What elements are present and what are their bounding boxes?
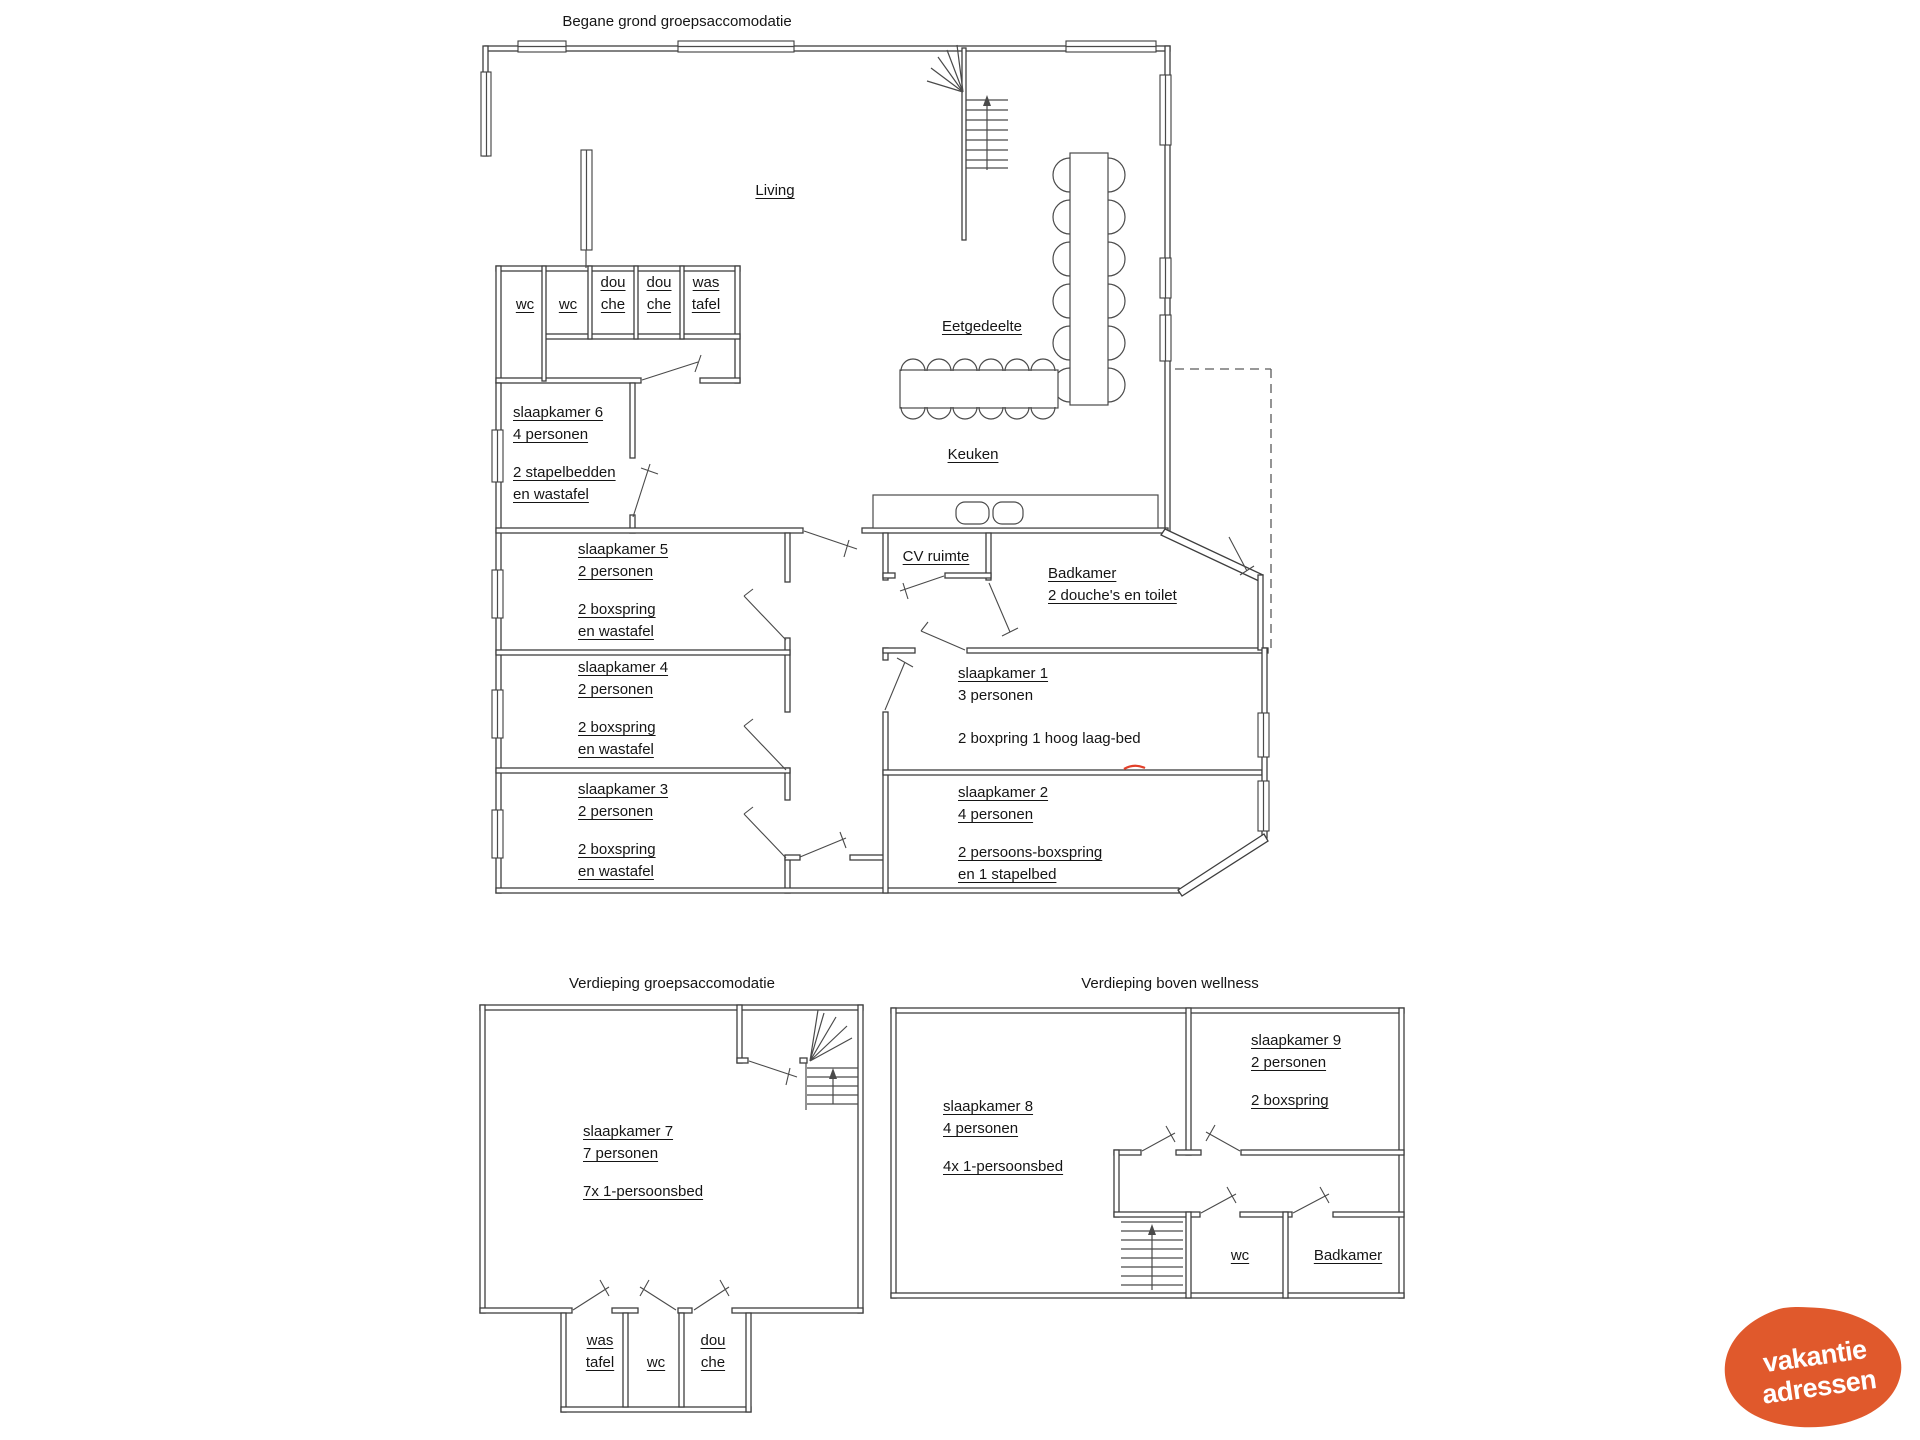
sk5-beds2: en wastafel bbox=[578, 621, 668, 643]
wastafel-line2: tafel bbox=[692, 294, 720, 316]
area-label-eetgedeelte: Eetgedeelte bbox=[942, 316, 1022, 338]
sk4-beds2: en wastafel bbox=[578, 739, 668, 761]
room-label-douche-2: dou che bbox=[646, 272, 671, 316]
sk5-capacity: 2 personen bbox=[578, 561, 668, 583]
room-label-douche-f1: dou che bbox=[700, 1330, 725, 1374]
room-label-wc-f1: wc bbox=[647, 1352, 665, 1374]
sk1-name: slaapkamer 1 bbox=[958, 663, 1141, 685]
room-label-badkamer: Badkamer 2 douche's en toilet bbox=[1048, 563, 1177, 607]
room-label-slaapkamer-5: slaapkamer 5 2 personen 2 boxspring en w… bbox=[578, 539, 668, 643]
room-label-slaapkamer-7: slaapkamer 7 7 personen 7x 1-persoonsbed bbox=[583, 1121, 703, 1203]
ground-floor-title: Begane grond groepsaccomodatie bbox=[562, 11, 791, 33]
douche-1-line1: dou bbox=[600, 272, 625, 294]
room-label-slaapkamer-8: slaapkamer 8 4 personen 4x 1-persoonsbed bbox=[943, 1096, 1063, 1178]
wellness-floor-stairs-icon bbox=[1121, 1222, 1183, 1290]
room-label-wastafel: was tafel bbox=[692, 272, 720, 316]
wastafel-line1: was bbox=[692, 272, 720, 294]
room-label-wc-1: wc bbox=[516, 294, 534, 316]
sk5-beds1: 2 boxspring bbox=[578, 599, 668, 621]
room-label-badkamer-f2: Badkamer bbox=[1314, 1245, 1382, 1267]
room-label-slaapkamer-9: slaapkamer 9 2 personen 2 boxspring bbox=[1251, 1030, 1341, 1112]
douche-2-line2: che bbox=[646, 294, 671, 316]
room-label-slaapkamer-3: slaapkamer 3 2 personen 2 boxspring en w… bbox=[578, 779, 668, 883]
sk6-capacity: 4 personen bbox=[513, 424, 616, 446]
room-label-wastafel-f1: was tafel bbox=[586, 1330, 614, 1374]
sk2-beds2: en 1 stapelbed bbox=[958, 864, 1102, 886]
wastafel-f1-line1: was bbox=[586, 1330, 614, 1352]
douche-f1-line1: dou bbox=[700, 1330, 725, 1352]
kitchen-counter bbox=[873, 495, 1158, 528]
room-label-slaapkamer-2: slaapkamer 2 4 personen 2 persoons-boxsp… bbox=[958, 782, 1102, 886]
room-label-slaapkamer-4: slaapkamer 4 2 personen 2 boxspring en w… bbox=[578, 657, 668, 761]
sk2-beds1: 2 persoons-boxspring bbox=[958, 842, 1102, 864]
sk7-name: slaapkamer 7 bbox=[583, 1121, 703, 1143]
sk9-capacity: 2 personen bbox=[1251, 1052, 1341, 1074]
area-label-keuken: Keuken bbox=[948, 444, 999, 466]
sk1-capacity: 3 personen bbox=[958, 685, 1141, 707]
sk2-capacity: 4 personen bbox=[958, 804, 1102, 826]
sk3-beds2: en wastafel bbox=[578, 861, 668, 883]
sk4-name: slaapkamer 4 bbox=[578, 657, 668, 679]
wellness-floor-title: Verdieping boven wellness bbox=[1081, 973, 1259, 995]
sk8-beds1: 4x 1-persoonsbed bbox=[943, 1156, 1063, 1178]
sk8-capacity: 4 personen bbox=[943, 1118, 1063, 1140]
sk5-name: slaapkamer 5 bbox=[578, 539, 668, 561]
room-label-douche-1: dou che bbox=[600, 272, 625, 316]
sk9-beds1: 2 boxspring bbox=[1251, 1090, 1341, 1112]
room-label-cv-ruimte: CV ruimte bbox=[903, 546, 970, 568]
sk4-capacity: 2 personen bbox=[578, 679, 668, 701]
red-annotation-mark bbox=[1124, 766, 1145, 769]
upper-floor-stairs-icon bbox=[806, 1010, 858, 1110]
dashed-annex-outline bbox=[1175, 369, 1271, 654]
wellness-floor-doors bbox=[1142, 1125, 1329, 1213]
douche-f1-line2: che bbox=[700, 1352, 725, 1374]
sk3-name: slaapkamer 3 bbox=[578, 779, 668, 801]
area-label-living: Living bbox=[755, 180, 794, 202]
sk6-beds2: en wastafel bbox=[513, 484, 616, 506]
sk6-beds1: 2 stapelbedden bbox=[513, 462, 616, 484]
upper-floor-title: Verdieping groepsaccomodatie bbox=[569, 973, 775, 995]
douche-2-line1: dou bbox=[646, 272, 671, 294]
floorplan-page: Begane grond groepsaccomodatie Living Ee… bbox=[0, 0, 1920, 1440]
room-label-wc-2: wc bbox=[559, 294, 577, 316]
room-label-slaapkamer-6: slaapkamer 6 4 personen 2 stapelbedden e… bbox=[513, 402, 616, 506]
room-label-wc-f2: wc bbox=[1231, 1245, 1249, 1267]
dining-tables bbox=[900, 153, 1125, 419]
ground-floor-stairs-icon bbox=[927, 45, 1008, 170]
sk7-capacity: 7 personen bbox=[583, 1143, 703, 1165]
sk4-beds1: 2 boxspring bbox=[578, 717, 668, 739]
sk1-beds1: 2 boxpring 1 hoog laag-bed bbox=[958, 728, 1141, 750]
sk3-beds1: 2 boxspring bbox=[578, 839, 668, 861]
wastafel-f1-line2: tafel bbox=[586, 1352, 614, 1374]
badkamer-name: Badkamer bbox=[1048, 563, 1177, 585]
sk3-capacity: 2 personen bbox=[578, 801, 668, 823]
sk9-name: slaapkamer 9 bbox=[1251, 1030, 1341, 1052]
sk6-name: slaapkamer 6 bbox=[513, 402, 616, 424]
sk2-name: slaapkamer 2 bbox=[958, 782, 1102, 804]
sk7-beds1: 7x 1-persoonsbed bbox=[583, 1181, 703, 1203]
room-label-slaapkamer-1: slaapkamer 1 3 personen 2 boxpring 1 hoo… bbox=[958, 663, 1141, 750]
douche-1-line2: che bbox=[600, 294, 625, 316]
sk8-name: slaapkamer 8 bbox=[943, 1096, 1063, 1118]
badkamer-desc: 2 douche's en toilet bbox=[1048, 585, 1177, 607]
